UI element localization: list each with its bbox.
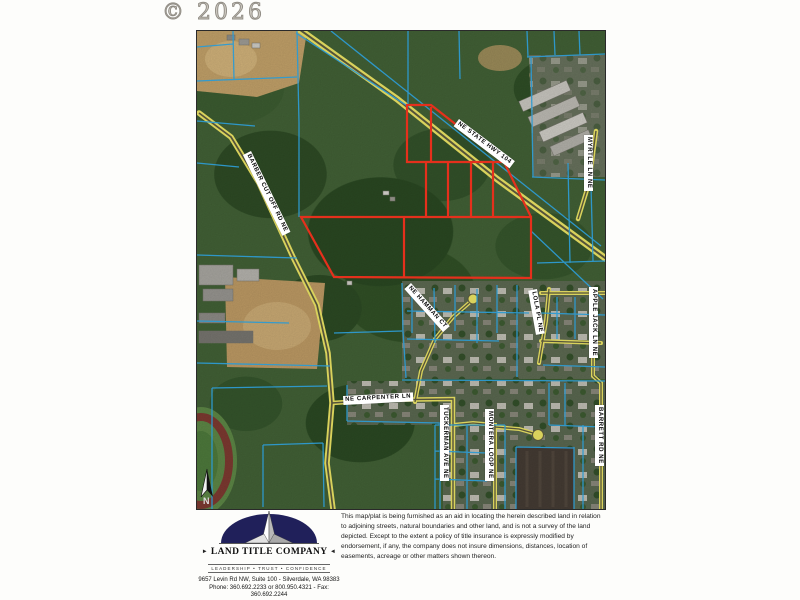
arrow-right-icon: ► [202,549,208,555]
page: © 2026 [0,0,800,600]
company-tagline: LEADERSHIP • TRUST • CONFIDENCE [208,564,329,573]
north-label: N [203,496,210,506]
company-address: 9657 Levin Rd NW, Suite 100 - Silverdale… [196,577,342,585]
plat-map: NE STATE HWY 104 BARBER CUT OFF RD NE MY… [196,30,606,510]
map-disclaimer: This map/plat is being furnished as an a… [341,512,602,562]
road-label-apple-jack: APPLE JACK LN NE [589,287,598,358]
road-label-tuckerman: TUCKERMAN AVE NE [440,405,449,481]
road-label-montera: MONTERA LOOP NE [485,409,494,481]
company-name: ► LAND TITLE COMPANY ◄ [196,547,342,557]
road-label-barrett: BARRETT RD NE [595,405,604,466]
copyright-watermark: © 2026 [162,0,265,25]
land-title-logo-icon [217,508,321,544]
road-label-myrtle: MYRTLE LN NE [584,135,593,191]
company-logo-block: ► LAND TITLE COMPANY ◄ LEADERSHIP • TRUS… [196,508,342,600]
company-phone-fax: Phone: 360.692.2233 or 800.950.4321 - Fa… [196,585,342,600]
cul-de-sac [533,430,544,441]
arrow-left-icon: ◄ [330,549,336,555]
aerial-map-graphic [197,31,605,509]
